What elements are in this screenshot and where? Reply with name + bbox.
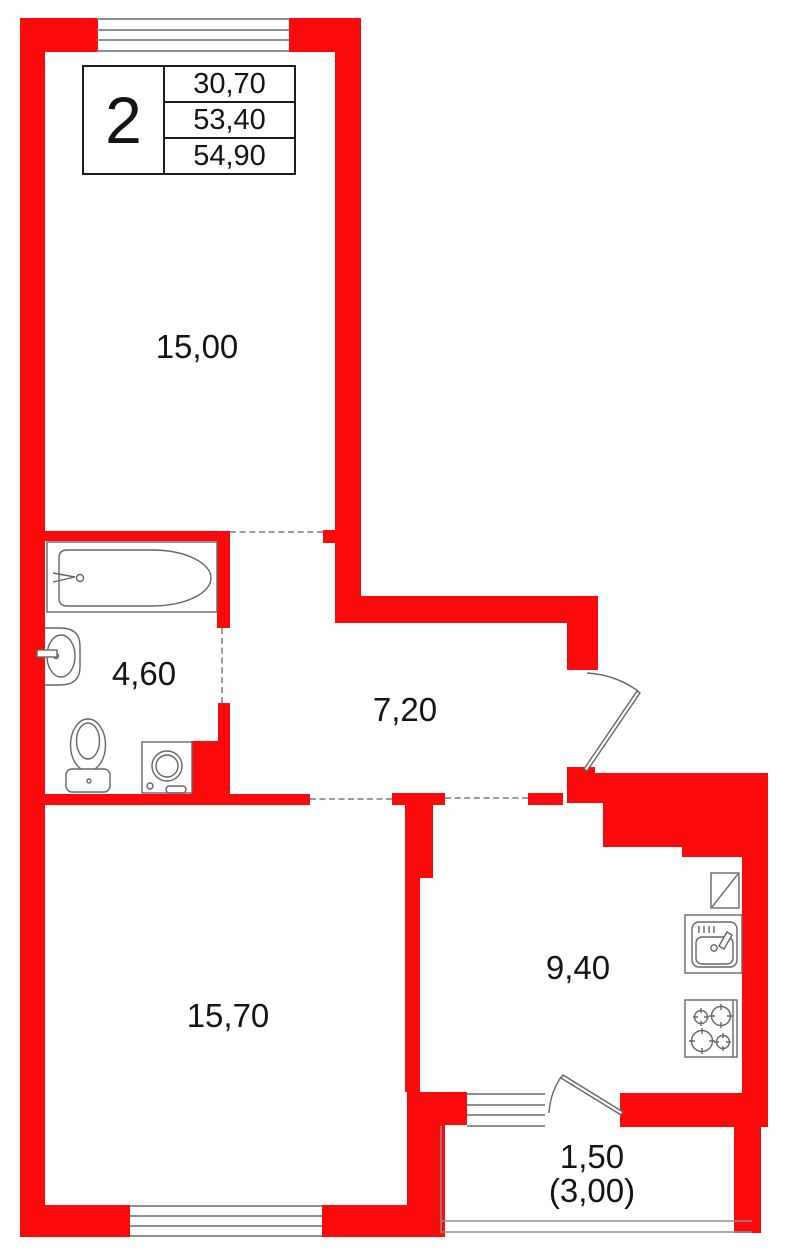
legend-area-row: 30,70: [165, 67, 294, 103]
stove: [685, 1000, 737, 1057]
legend-areas: 30,70 53,40 54,90: [165, 67, 294, 173]
kitchen-sink: [685, 915, 742, 973]
fixtures-layer: [0, 0, 788, 1259]
washing-machine: [142, 742, 192, 793]
hallway-area-label: 7,20: [373, 691, 437, 729]
washbasin: [37, 628, 80, 685]
legend-area-row: 54,90: [165, 139, 294, 173]
balcony-area-label: 1,50: [560, 1138, 624, 1176]
toilet: [66, 719, 110, 792]
floor-plan: 15,00 4,60 7,20 15,70 9,40 1,50 (3,00) 2…: [0, 0, 788, 1259]
legend-table: 2 30,70 53,40 54,90: [82, 65, 296, 175]
bedroom-area-label: 15,70: [187, 997, 270, 1035]
balcony-area-label-secondary: (3,00): [549, 1172, 635, 1210]
kitchen-area-label: 9,40: [546, 949, 610, 987]
balcony-door: [549, 1075, 623, 1115]
entry-door: [584, 673, 640, 771]
legend-area-row: 53,40: [165, 103, 294, 139]
legend-rooms-count: 2: [84, 67, 165, 173]
living-room-area-label: 15,00: [156, 328, 239, 366]
ventilation-shaft: [711, 873, 739, 908]
bathtub: [47, 542, 217, 612]
bathroom-area-label: 4,60: [112, 655, 176, 693]
